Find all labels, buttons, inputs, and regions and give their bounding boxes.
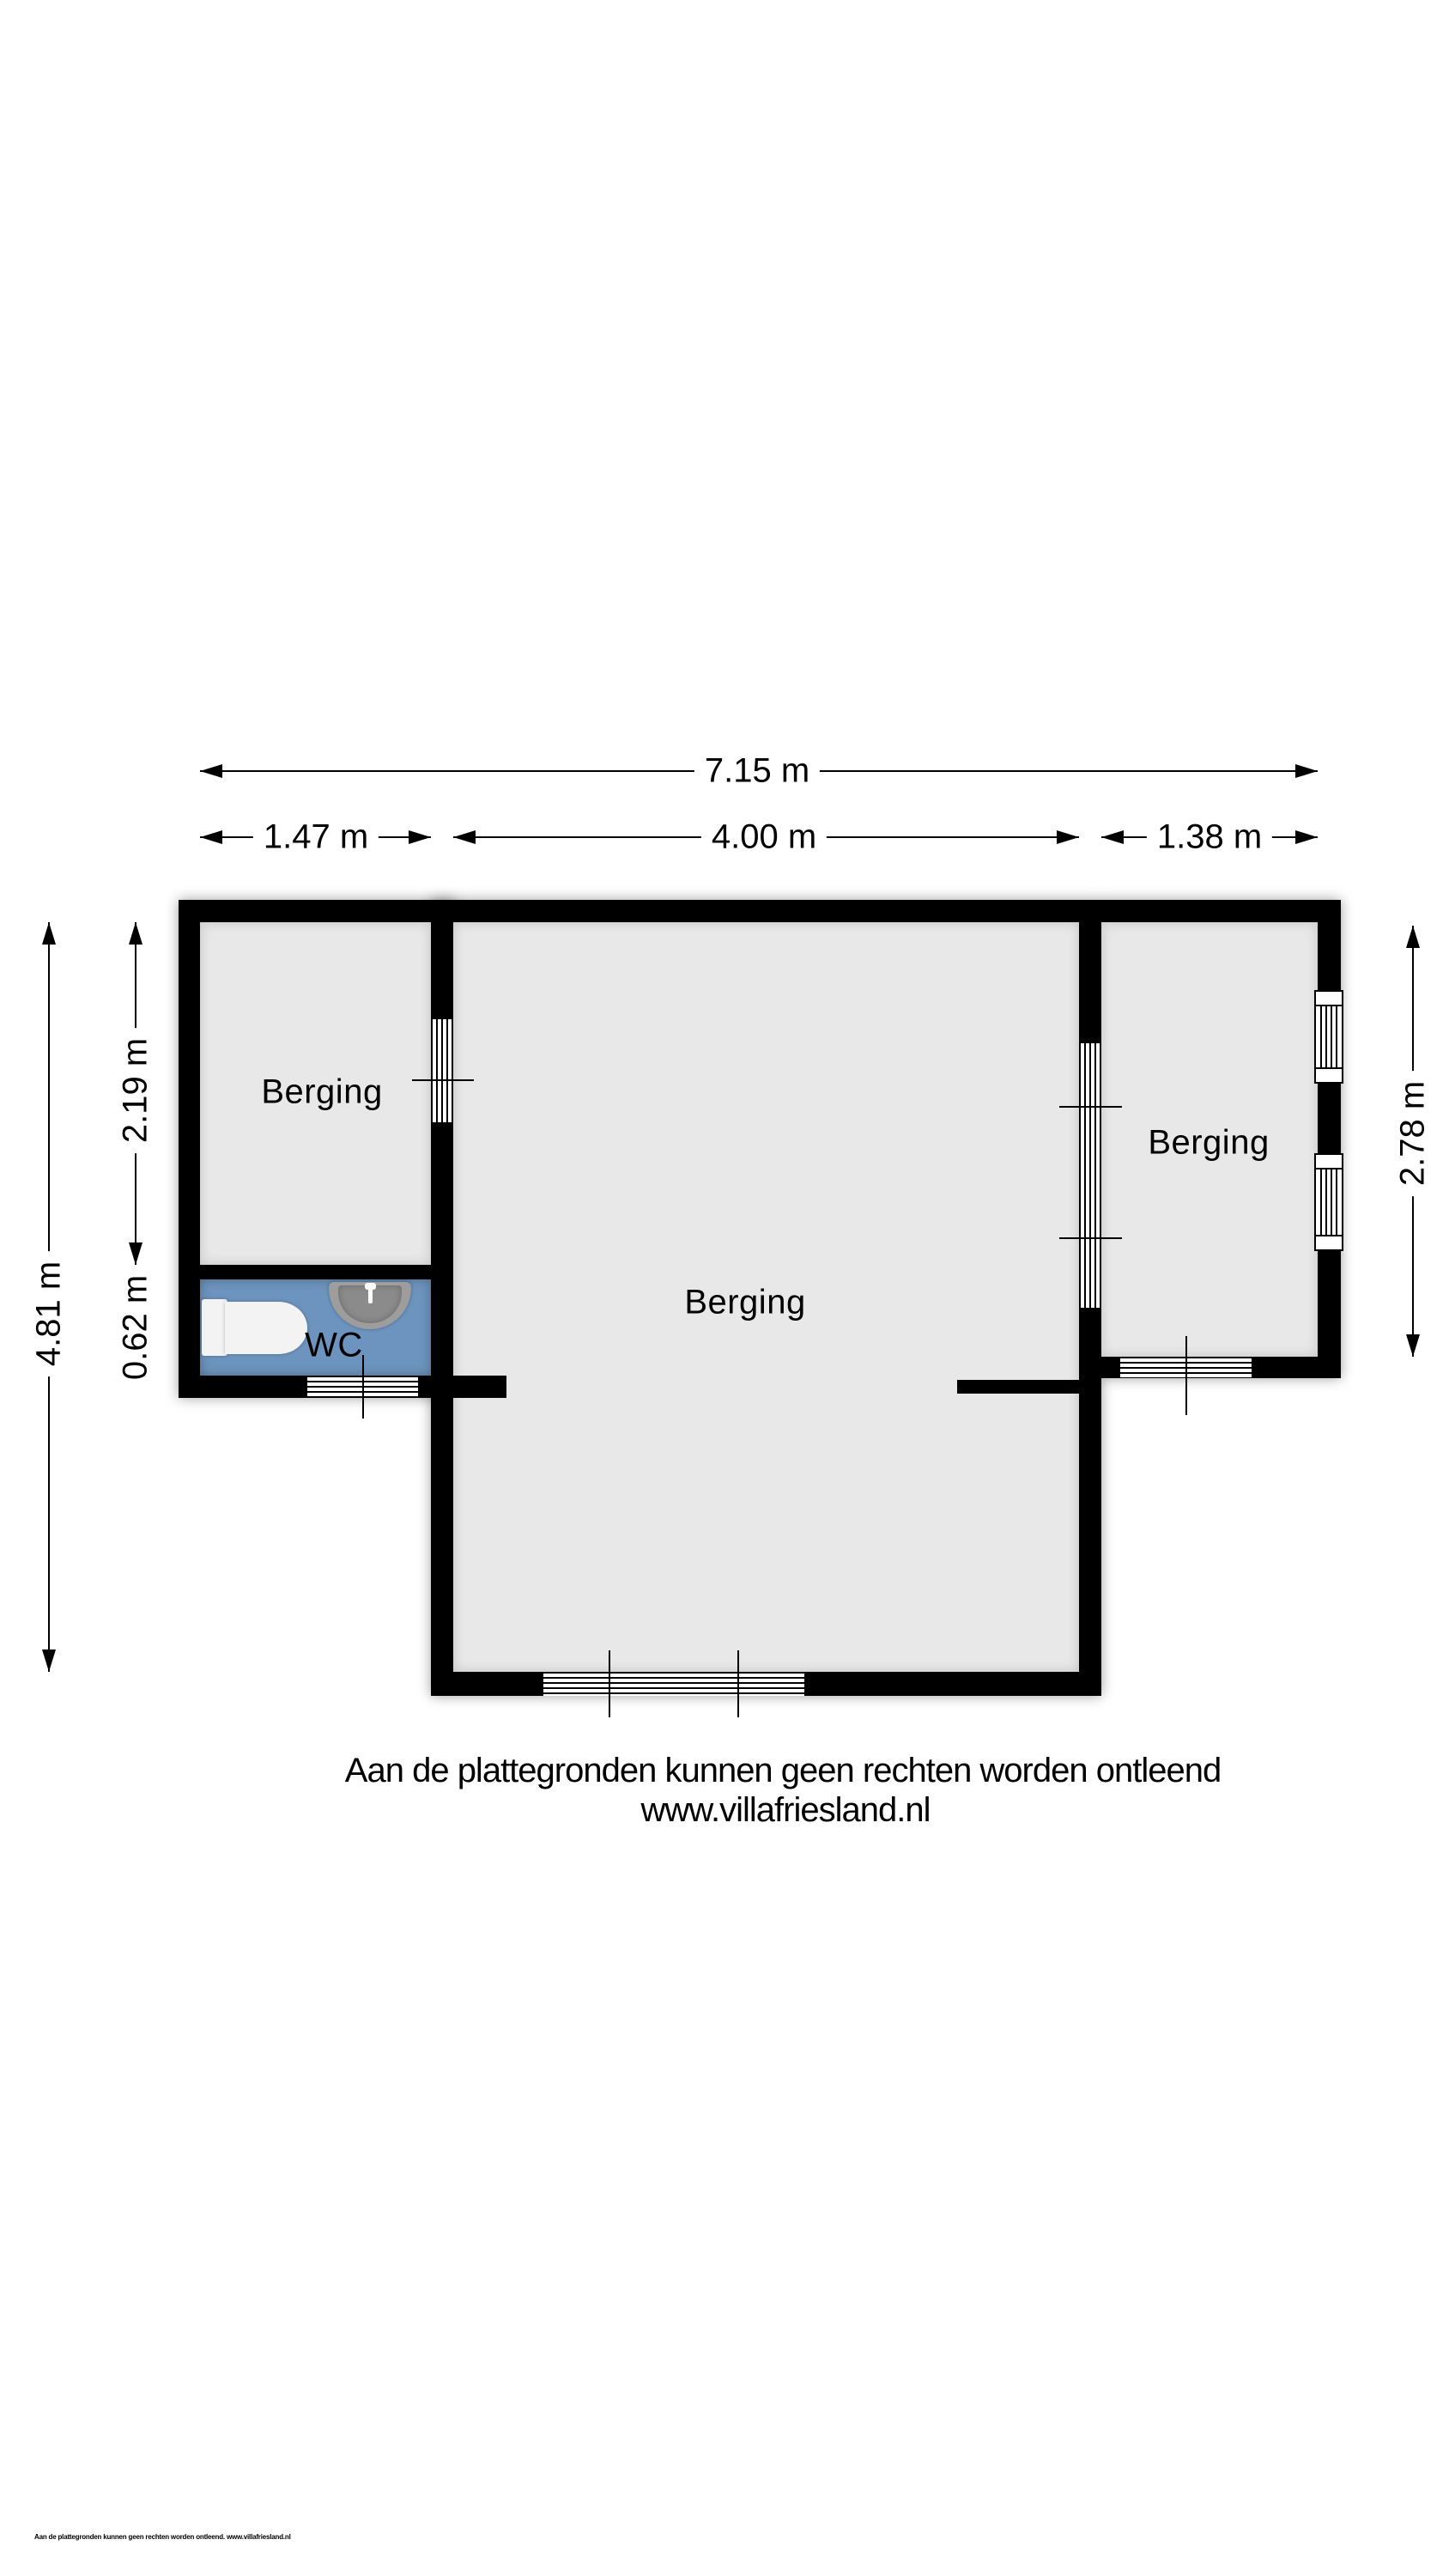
window-cap [1316,992,1342,1006]
wall-right-seg1 [1318,900,1341,990]
dim-arrow-right [1295,764,1318,778]
wall-interior-right-upper [1079,922,1101,1043]
wall-stub-middle-room [957,1380,1079,1394]
wall-left [179,900,200,1398]
dim-arrow-right [1295,830,1318,844]
door-tick-bottom-1 [609,1650,610,1717]
disclaimer-text: Aan de plattegronden kunnen geen rechten… [345,1752,1221,1790]
faucet-icon-head [365,1283,376,1290]
wall-interior-right-lower [1079,1308,1101,1696]
dim-arrow-left [200,764,222,778]
wall-top [179,900,1341,922]
dim-arrow-down [1406,1334,1420,1357]
window-cap [1316,1067,1342,1082]
label-berging-middle: Berging [684,1284,805,1322]
dim-arrow-up [1406,926,1420,948]
dim-label-wc-height: 0.62 m [117,1265,155,1390]
dim-arrow-down [42,1649,56,1672]
door-tick-bottom-2 [737,1650,739,1717]
dim-label-right-room-height: 2.78 m [1394,1071,1433,1196]
faucet-icon [368,1288,373,1303]
wall-berging-wc-divider [200,1265,431,1279]
dim-arrow-up [42,922,56,945]
wall-interior-left-upper [431,922,453,1019]
dim-arrow-left [200,830,222,844]
wall-bottom-right [804,1672,1101,1696]
dim-label-total-height: 4.81 m [30,1251,69,1376]
toilet-bowl [225,1302,307,1354]
window-right-lower [1314,1153,1343,1251]
label-berging-right: Berging [1148,1124,1269,1163]
door-tick-right-berging-2 [1059,1237,1122,1239]
wall-right-seg3 [1318,1251,1341,1378]
door-tick-right-exterior [1185,1336,1187,1415]
door-tick-right-berging-1 [1059,1106,1122,1108]
wall-wc-bottom-left [179,1376,307,1398]
dim-label-total-width: 7.15 m [694,752,820,791]
dim-arrow-left [1101,830,1124,844]
dim-label-left-width: 1.47 m [253,818,379,857]
window-cap [1316,1235,1342,1249]
website-text: www.villafriesland.nl [641,1791,931,1830]
window-cap [1316,1155,1342,1170]
dim-arrow-left [453,830,476,844]
dim-arrow-down [129,1242,142,1265]
door-middle-exterior [543,1672,804,1696]
window-glass [1320,1170,1337,1235]
wall-bottom-left [431,1672,543,1696]
door-left-berging [431,1019,453,1122]
label-berging-left: Berging [261,1073,382,1112]
dim-arrow-right [409,830,431,844]
floorplan-canvas: Berging Berging Berging WC 7.15 m 1.47 m… [0,0,1449,2576]
dim-arrow-right [1057,830,1079,844]
label-wc: WC [305,1327,363,1365]
dim-label-left-room-height: 2.19 m [117,1028,155,1153]
wall-interior-left-lower [431,1122,453,1696]
window-right-upper [1314,990,1343,1084]
fineprint-text: Aan de plattegronden kunnen geen rechten… [34,2533,291,2541]
window-glass [1320,1006,1337,1067]
wall-right-seg2 [1318,1084,1341,1153]
wall-wc-bottom-right [418,1376,506,1398]
dim-label-right-width: 1.38 m [1147,818,1272,857]
door-right-berging [1079,1043,1101,1308]
dim-arrow-up [129,922,142,945]
door-tick-left-berging [412,1079,474,1081]
wall-right-door-jamb [1101,1357,1120,1378]
toilet-tank [202,1299,227,1356]
dim-label-middle-width: 4.00 m [701,818,827,857]
